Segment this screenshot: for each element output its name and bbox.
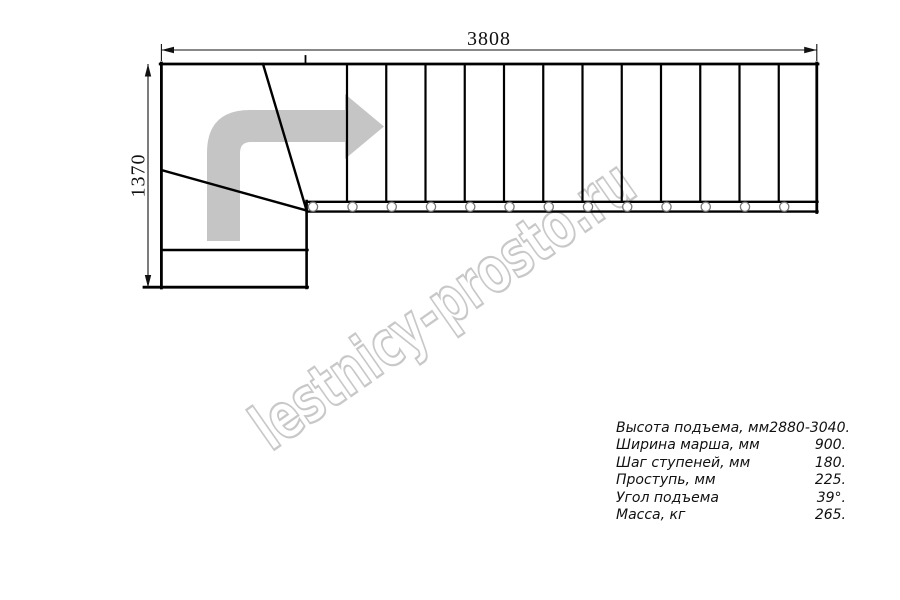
spec-label: Ширина марша, мм — [616, 437, 760, 454]
baluster-circles — [308, 202, 788, 211]
spec-value: 39°. — [817, 490, 846, 507]
spec-row-angle: Угол подъема 39°. — [616, 490, 846, 507]
spec-value: 225. — [815, 472, 846, 489]
height-dimension-label: 1370 — [128, 154, 150, 198]
direction-arrow-icon — [207, 94, 384, 241]
spec-label: Высота подъема, мм — [616, 420, 769, 437]
spec-value: 900. — [815, 437, 846, 454]
spec-row-tread: Проступь, мм 225. — [616, 472, 846, 489]
spec-row-mass: Масса, кг 265. — [616, 507, 846, 524]
spec-value: 265. — [815, 507, 846, 524]
watermark: lestnicy-prosto.ru — [238, 146, 649, 465]
watermark-text: lestnicy-prosto.ru — [238, 146, 649, 465]
spec-row-rise-height: Высота подъема, мм 2880-3040. — [616, 420, 846, 437]
width-dimension-label: 3808 — [467, 28, 511, 50]
spec-value: 2880-3040. — [769, 420, 850, 437]
height-dimension: 1370 — [128, 64, 152, 288]
spec-label: Масса, кг — [616, 507, 685, 524]
spec-row-flight-width: Ширина марша, мм 900. — [616, 437, 846, 454]
stair-plan-page: lestnicy-prosto.ru — [0, 0, 900, 600]
spec-value: 180. — [815, 455, 846, 472]
spec-label: Проступь, мм — [616, 472, 716, 489]
spec-row-step-rise: Шаг ступеней, мм 180. — [616, 455, 846, 472]
spec-label: Шаг ступеней, мм — [616, 455, 750, 472]
spec-table: Высота подъема, мм 2880-3040. Ширина мар… — [616, 420, 846, 524]
width-dimension: 3808 — [161, 28, 816, 61]
spec-label: Угол подъема — [616, 490, 719, 507]
